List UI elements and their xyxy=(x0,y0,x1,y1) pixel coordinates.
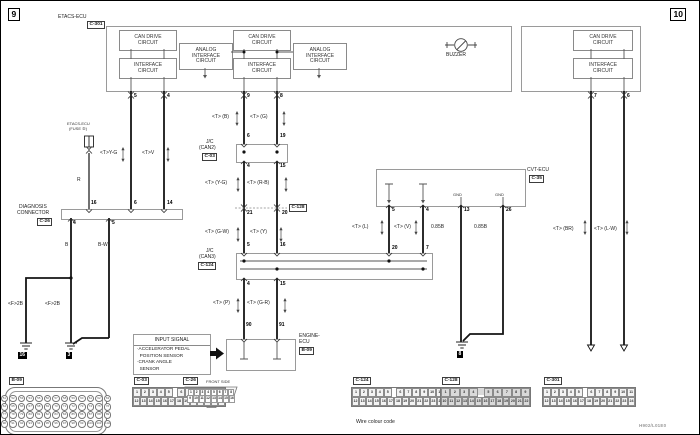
pin-circle: 80 xyxy=(26,411,34,419)
pin-cell: 17 xyxy=(168,397,175,406)
twist-arrow-icon xyxy=(625,232,628,235)
pin-circle: 70 xyxy=(52,403,60,411)
twist-arrow-icon xyxy=(380,220,383,223)
ground-icon xyxy=(65,343,77,349)
internal-connections xyxy=(131,49,624,359)
pin-cell: 1 xyxy=(352,388,360,397)
wire-label: <T> (BR) xyxy=(553,226,574,232)
twist-arrow-icon xyxy=(235,111,238,114)
pin-number: 15 xyxy=(280,281,286,287)
wire-label: <T> (V) xyxy=(394,224,411,230)
pin-cell: 20 xyxy=(509,397,516,406)
pin-cell: 24 xyxy=(628,397,635,406)
pin-cell: 21 xyxy=(607,397,614,406)
wire-label: <T> (G) xyxy=(250,114,268,120)
twist-arrow-icon xyxy=(414,232,417,235)
pin-circle: 78 xyxy=(9,411,17,419)
pin-cell: 1 xyxy=(133,388,141,397)
pin-circle: 61 xyxy=(87,395,95,403)
cvt-ecu-label: CVT-ECU xyxy=(527,167,549,173)
gnd-label: GND xyxy=(495,192,504,197)
pin-circle: 81 xyxy=(35,411,43,419)
pin-entry-icon xyxy=(274,144,280,147)
pin-circle: 71 xyxy=(61,403,69,411)
pin-cell: 4 xyxy=(469,388,478,397)
pin-cell: 3 xyxy=(460,388,469,397)
pin-cell: 6 xyxy=(587,388,595,397)
pin-cell: 15 xyxy=(373,397,380,406)
pin-circle: 55 xyxy=(35,395,43,403)
pin-number: 6 xyxy=(134,200,137,206)
junction-label: (CAN2) xyxy=(199,145,216,151)
twist-arrow-icon xyxy=(282,123,285,126)
pin-circle: 52 xyxy=(9,395,17,403)
pin-number: 20 xyxy=(282,210,288,216)
pin-cell: 12 xyxy=(543,397,550,406)
pin-circle: 51 xyxy=(1,395,9,403)
connector-ref-c26: C-26 xyxy=(37,218,52,226)
pin-circle: 68 xyxy=(35,403,43,411)
connector-ref-c35: C-35 xyxy=(529,175,544,183)
ground-point-3: 3 xyxy=(66,352,72,359)
pin-cell: 14 xyxy=(366,397,373,406)
pin-number: 16 xyxy=(91,200,97,206)
pin-cell: 5 xyxy=(165,388,173,397)
pin-cell: 14 xyxy=(557,397,564,406)
pin-number: 7 xyxy=(426,245,429,251)
pin-circle: 84 xyxy=(61,411,69,419)
fuse-icon xyxy=(85,136,94,147)
wire-label: 0.85B xyxy=(431,224,444,230)
pin-entry-icon xyxy=(420,253,426,256)
connector-ref-c03: C-03 xyxy=(202,153,217,161)
pin-cell: 1 xyxy=(441,388,450,397)
pin-entry-icon xyxy=(86,210,92,213)
pin-circle: 77 xyxy=(1,411,9,419)
twist-arrow-icon xyxy=(166,147,169,150)
pin-circle: 83 xyxy=(52,411,60,419)
pin-cell: 19 xyxy=(593,397,600,406)
pin-cell: 4 xyxy=(157,388,165,397)
pin-cell: 2 xyxy=(551,388,559,397)
pin-number: 21 xyxy=(247,210,253,216)
pin-number: 4 xyxy=(247,163,250,169)
pinout-tag-c301: C-301 xyxy=(544,377,562,385)
pin-cell: 2 xyxy=(360,388,368,397)
pin-circle: 66 xyxy=(18,403,26,411)
pin-cell: 19 xyxy=(503,397,510,406)
pin-cell: 20 xyxy=(600,397,607,406)
terminal-join-icon xyxy=(86,147,92,154)
pin-number: 26 xyxy=(506,207,512,213)
pin-cell: 6 xyxy=(396,388,404,397)
pinout-tag-c03: C-03 xyxy=(134,377,149,385)
wire-label: <T>Y-G xyxy=(100,150,117,156)
pinout-tag-b09: B-09 xyxy=(9,377,24,385)
pin-cell: 16 xyxy=(161,397,168,406)
pin-circle: 95 xyxy=(44,420,52,428)
ground-icon xyxy=(456,342,468,348)
pinout-b09-pins: 5152535455565758596061626364656667686970… xyxy=(9,391,103,432)
pin-circle: 69 xyxy=(44,403,52,411)
pin-cell: 10 xyxy=(441,397,448,406)
pin-cell: 3 xyxy=(368,388,376,397)
twist-arrow-icon xyxy=(282,111,285,114)
pin-cell: 3 xyxy=(559,388,567,397)
pin-circle: 56 xyxy=(44,395,52,403)
wire-label: <T> (G-W) xyxy=(205,229,229,235)
pin-number: 4 xyxy=(426,207,429,213)
wire-label: <F>2B xyxy=(45,301,60,307)
twist-arrow-icon xyxy=(284,189,287,192)
wire-label: <T> (Y) xyxy=(250,229,267,235)
twist-arrow-icon xyxy=(235,123,238,126)
wire-label: <T> (L-W) xyxy=(594,226,617,232)
document-code: H902/L01E0 xyxy=(639,423,666,428)
pin-cell: 18 xyxy=(175,397,182,406)
pin-cell: 8 xyxy=(512,388,521,397)
pin-circle: 94 xyxy=(35,420,43,428)
wire-label: <T> (L) xyxy=(352,224,368,230)
pin-number: 13 xyxy=(464,207,470,213)
wiring-layer xyxy=(1,1,700,435)
twist-arrow-icon xyxy=(236,227,239,230)
pin-circle: 54 xyxy=(26,395,34,403)
wire-label: B-W xyxy=(98,242,108,248)
pin-cell: 17 xyxy=(578,397,585,406)
pin-number: 5 xyxy=(392,207,395,213)
twist-arrow-icon xyxy=(236,189,239,192)
pin-circle: 60 xyxy=(78,395,86,403)
wire-label: <T>V xyxy=(142,150,154,156)
pin-number: 14 xyxy=(167,200,173,206)
twist-arrow-icon xyxy=(236,239,239,242)
pinout-tag-c128: C-128 xyxy=(442,377,460,385)
pin-cell: 2 xyxy=(450,388,459,397)
pin-cell: 19 xyxy=(402,397,409,406)
pin-circle: 59 xyxy=(69,395,77,403)
twist-arrow-icon xyxy=(583,232,586,235)
pin-circle: 96 xyxy=(52,420,60,428)
connector-ref-c301: C-301 xyxy=(87,21,105,29)
twist-arrow-icon xyxy=(583,220,586,223)
pin-circle: 79 xyxy=(18,411,26,419)
pin-entry-icon xyxy=(386,253,392,256)
pin-cell: 13 xyxy=(462,397,469,406)
pinout-c301: 123456789101112131415161718192021222324 xyxy=(542,387,636,407)
twist-arrow-icon xyxy=(121,159,124,162)
ground-point-16: 16 xyxy=(18,352,27,359)
pin-circle: 73 xyxy=(78,403,86,411)
pin-cell: 22 xyxy=(423,397,430,406)
pin-cell: 21 xyxy=(416,397,423,406)
pin-circle: 85 xyxy=(69,411,77,419)
pin-entry-icon xyxy=(241,339,247,342)
gnd-label: GND xyxy=(453,192,462,197)
pin-circle: 87 xyxy=(87,411,95,419)
arrow-down-icon xyxy=(421,200,425,204)
pin-number: 9 xyxy=(247,93,250,99)
pin-cell: 11 xyxy=(627,388,635,397)
etacs-ecu-title: ETACS-ECU xyxy=(58,14,87,20)
pin-circle: 88 xyxy=(95,411,103,419)
pin-circle: 72 xyxy=(69,403,77,411)
pin-cell: 5 xyxy=(575,388,583,397)
pin-number: 4 xyxy=(167,93,170,99)
twist-arrow-icon xyxy=(284,177,287,180)
pin-cell: 18 xyxy=(496,397,503,406)
pin-circle: 99 xyxy=(78,420,86,428)
diagnosis-connector-label: CONNECTOR xyxy=(17,210,49,216)
pin-entry-icon xyxy=(128,210,134,213)
pin-cell: 12 xyxy=(455,397,462,406)
pin-circle: 64 xyxy=(1,403,9,411)
pin-cell: 4 xyxy=(567,388,575,397)
pin-circle: 86 xyxy=(78,411,86,419)
pin-number: 6 xyxy=(627,93,630,99)
connector-ref-c128: C-128 xyxy=(289,204,307,212)
pin-number: 4 xyxy=(73,220,76,226)
pin-cell: 10 xyxy=(619,388,627,397)
pin-cell: 22 xyxy=(523,397,530,406)
ground-icon xyxy=(20,343,32,349)
pin-circle: 92 xyxy=(18,420,26,428)
pin-number: 7 xyxy=(594,93,597,99)
pin-cell: 9 xyxy=(611,388,619,397)
engine-ecu-label: ECU xyxy=(299,339,310,345)
pin-cell: 6 xyxy=(493,388,502,397)
pin-cell: 15 xyxy=(154,397,161,406)
pin-number: 90 xyxy=(246,322,252,328)
twist-arrow-icon xyxy=(236,298,239,301)
pin-number: 8 xyxy=(280,93,283,99)
pin-cell: 9 xyxy=(420,388,428,397)
pin-number: 4 xyxy=(247,281,250,287)
pin-circle: 65 xyxy=(9,403,17,411)
pin-number: 6 xyxy=(247,133,250,139)
pin-cell: 2 xyxy=(141,388,149,397)
wire-label: 0.85B xyxy=(474,224,487,230)
pin-entry-icon xyxy=(274,253,280,256)
pin-cell: 12 xyxy=(133,397,140,406)
pin-circle: 100 xyxy=(87,420,95,428)
pin-number: 20 xyxy=(392,245,398,251)
twist-arrow-icon xyxy=(236,310,239,313)
pin-cell: 15 xyxy=(564,397,571,406)
pin-circle: 101 xyxy=(95,420,103,428)
wires xyxy=(26,91,624,345)
pinout-b09: 5152535455565758596061626364656667686970… xyxy=(5,387,107,435)
pin-circle: 76 xyxy=(104,403,112,411)
ground-point-8: 8 xyxy=(457,351,463,358)
pin-cell: 8 xyxy=(412,388,420,397)
wire-label: <F>2B xyxy=(8,301,23,307)
pin-cell: 18 xyxy=(394,397,401,406)
twist-arrow-icon xyxy=(166,159,169,162)
pin-cell: 21 xyxy=(516,397,523,406)
connector-ref-b09: B-09 xyxy=(299,347,314,355)
pin-circle: 57 xyxy=(52,395,60,403)
pin-entry-icon xyxy=(241,144,247,147)
pin-cell: 3 xyxy=(149,388,157,397)
pinout-c128: 12345678910111213141516171819202122 xyxy=(440,387,531,407)
pin-cell: 8 xyxy=(603,388,611,397)
pin-circle: 97 xyxy=(61,420,69,428)
pin-number: 5 xyxy=(247,242,250,248)
pin-cell: 4 xyxy=(376,388,384,397)
twist-arrow-icon xyxy=(283,310,286,313)
pin-circle: 98 xyxy=(69,420,77,428)
pin-cell: 16 xyxy=(380,397,387,406)
twist-arrow-icon xyxy=(283,298,286,301)
pin-circle: 91 xyxy=(9,420,17,428)
wire-label: R xyxy=(77,177,81,183)
pin-cell: 11 xyxy=(448,397,455,406)
pin-cell: 23 xyxy=(621,397,628,406)
pin-circle: 82 xyxy=(44,411,52,419)
pin-number: 5 xyxy=(134,93,137,99)
pin-cell: 16 xyxy=(571,397,578,406)
pin-cell: 16 xyxy=(482,397,489,406)
wire-label: <T> (P) xyxy=(213,300,230,306)
arrow-down-icon xyxy=(317,75,321,79)
pin-cell: 14 xyxy=(468,397,475,406)
pinout-c124: 123456789101112131415161718192021222324 xyxy=(351,387,445,407)
pin-number: 19 xyxy=(280,133,286,139)
pin-circle: 102 xyxy=(104,420,112,428)
pin-cell: 7 xyxy=(502,388,511,397)
pin-cell: 10 xyxy=(428,388,436,397)
pin-cell: 5 xyxy=(484,388,493,397)
pin-circle: 75 xyxy=(95,403,103,411)
pin-cell: 1 xyxy=(543,388,551,397)
pin-cell: 18 xyxy=(585,397,592,406)
pin-number: 91 xyxy=(279,322,285,328)
wire-label: <T> (B) xyxy=(212,114,229,120)
pin-cell: 13 xyxy=(140,397,147,406)
arrow-down-icon xyxy=(387,200,391,204)
pin-cell: 14 xyxy=(147,397,154,406)
pin-cell: 16 xyxy=(229,395,235,403)
pin-number: 5 xyxy=(112,220,115,226)
pin-cell: 17 xyxy=(489,397,496,406)
pin-cell: 15 xyxy=(475,397,482,406)
pin-number: 15 xyxy=(280,163,286,169)
pin-cell: 6 xyxy=(177,388,185,397)
continuation-arrow-icon xyxy=(588,345,628,351)
wire-label: B xyxy=(65,242,68,248)
wire-label: <T> (Y-G) xyxy=(205,180,227,186)
pin-cell: 13 xyxy=(359,397,366,406)
pin-cell: 7 xyxy=(595,388,603,397)
pin-circle: 67 xyxy=(26,403,34,411)
pin-circle: 53 xyxy=(18,395,26,403)
pin-circle: 90 xyxy=(1,420,9,428)
wire-label: <T> (G-R) xyxy=(247,300,270,306)
pin-cell: 20 xyxy=(409,397,416,406)
twist-arrow-icon xyxy=(380,232,383,235)
pin-cell: 9 xyxy=(521,388,530,397)
legend-title: Wire colour code xyxy=(356,419,586,426)
twist-arrow-icon xyxy=(414,220,417,223)
pin-circle: 93 xyxy=(26,420,34,428)
pin-cell: 7 xyxy=(404,388,412,397)
pin-cell: 22 xyxy=(614,397,621,406)
wire-label: <T> (R-B) xyxy=(247,180,269,186)
buzzer-label: BUZZER xyxy=(446,52,466,58)
pin-number: 16 xyxy=(280,242,286,248)
pin-cell: 13 xyxy=(550,397,557,406)
arrow-down-icon xyxy=(203,75,207,79)
pin-circle: 58 xyxy=(61,395,69,403)
pin-cell: 12 xyxy=(352,397,359,406)
connector-ref-c124: C-124 xyxy=(198,262,216,270)
pin-entry-icon xyxy=(161,210,167,213)
pin-cell: 17 xyxy=(387,397,394,406)
pin-circle: 74 xyxy=(87,403,95,411)
pinout-tag-c124: C-124 xyxy=(353,377,371,385)
fuse-label: (FUSE ⑤) xyxy=(69,126,87,131)
pin-cell: 23 xyxy=(430,397,437,406)
wiring-diagram-page: 9 10 CAN DRIVE CIRCUIT INTERFACE CIRCUIT… xyxy=(0,0,700,435)
pin-circle: 62 xyxy=(95,395,103,403)
twist-arrow-icon xyxy=(236,177,239,180)
twist-arrow-icon xyxy=(279,227,282,230)
junction-label: (CAN3) xyxy=(199,254,216,260)
buzzer-icon xyxy=(445,39,477,52)
pinout-tag-c26: C-26 xyxy=(183,377,198,385)
pin-entry-icon xyxy=(241,253,247,256)
front-side-label: FRONT SIDE xyxy=(206,379,230,384)
pin-cell: 5 xyxy=(384,388,392,397)
input-signal-arrow-icon xyxy=(210,348,224,360)
twist-arrow-icon xyxy=(121,147,124,150)
twist-arrow-icon xyxy=(625,220,628,223)
pin-entry-icon xyxy=(274,339,280,342)
wire-colour-code-legend: Wire colour code B : Black LG : Light gr… xyxy=(356,406,586,435)
